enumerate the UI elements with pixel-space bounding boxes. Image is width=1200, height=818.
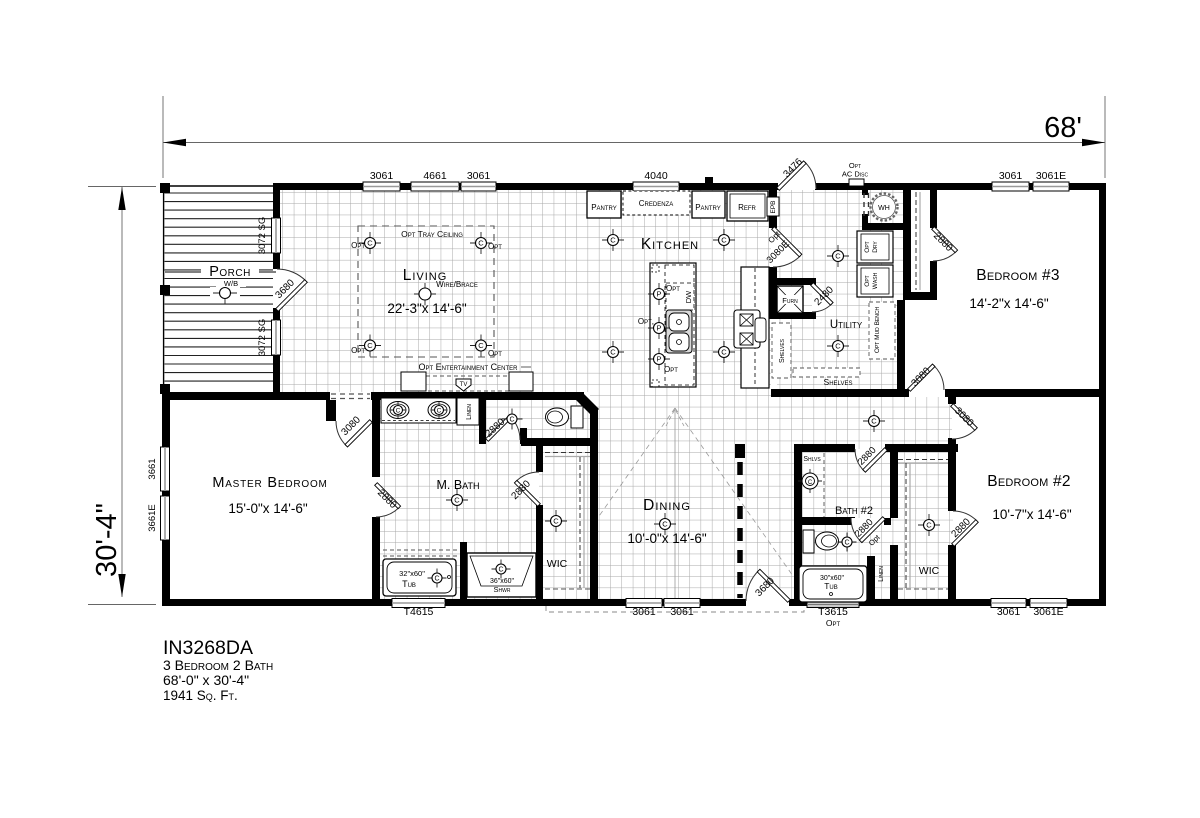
svg-text:Wash: Wash	[872, 272, 879, 289]
svg-text:C: C	[367, 341, 373, 350]
svg-text:Opt: Opt	[488, 242, 502, 251]
svg-text:C: C	[871, 417, 877, 426]
svg-text:Wire/Brace: Wire/Brace	[436, 280, 478, 289]
svg-text:M. Bath: M. Bath	[436, 478, 479, 492]
svg-text:T3615: T3615	[818, 606, 848, 618]
svg-text:Dining: Dining	[643, 497, 691, 514]
svg-text:Bedroom #2: Bedroom #2	[987, 473, 1070, 490]
svg-text:Shelves: Shelves	[824, 377, 853, 387]
svg-text:P: P	[656, 355, 661, 364]
svg-text:EPB: EPB	[770, 200, 777, 213]
svg-text:Opt: Opt	[864, 241, 871, 252]
svg-text:22'-3"x 14'-6": 22'-3"x 14'-6"	[387, 301, 466, 316]
svg-text:68'-0" x 30'-4": 68'-0" x 30'-4"	[163, 672, 249, 688]
svg-text:10'-7"x 14'-6": 10'-7"x 14'-6"	[992, 507, 1071, 522]
svg-text:36"x60": 36"x60"	[490, 578, 515, 585]
svg-text:3061: 3061	[999, 170, 1023, 182]
svg-text:C: C	[610, 236, 616, 245]
svg-text:3072 SG: 3072 SG	[257, 217, 268, 255]
svg-text:C: C	[610, 348, 616, 357]
svg-text:P: P	[656, 324, 661, 333]
svg-text:C: C	[662, 520, 668, 529]
svg-text:Opt Mud Bench: Opt Mud Bench	[874, 307, 881, 354]
svg-text:W/B: W/B	[224, 279, 238, 288]
svg-text:3661: 3661	[147, 458, 158, 479]
svg-text:68': 68'	[1044, 112, 1082, 144]
svg-text:Linen: Linen	[466, 404, 473, 420]
svg-text:Linen: Linen	[878, 566, 885, 582]
svg-text:Opt: Opt	[488, 349, 502, 358]
svg-text:C: C	[835, 252, 841, 261]
svg-text:4040: 4040	[644, 170, 668, 182]
svg-text:TV: TV	[460, 382, 468, 388]
svg-text:Opt Entertainment Center: Opt Entertainment Center	[419, 362, 519, 372]
svg-text:C: C	[835, 342, 841, 351]
svg-text:Shlvs: Shlvs	[803, 456, 821, 463]
svg-text:Utility: Utility	[830, 319, 863, 331]
svg-text:Tub: Tub	[402, 579, 416, 589]
svg-text:Opt,: Opt,	[638, 317, 654, 326]
svg-text:Credenza: Credenza	[639, 199, 673, 208]
svg-text:Tub: Tub	[824, 581, 838, 591]
svg-text:3072 SG: 3072 SG	[257, 319, 268, 357]
svg-text:3061E: 3061E	[1036, 170, 1066, 182]
svg-text:C: C	[721, 236, 727, 245]
svg-text:WIC: WIC	[547, 558, 568, 570]
svg-text:Shwr: Shwr	[494, 585, 511, 594]
svg-text:3061E: 3061E	[1033, 606, 1063, 618]
svg-text:C: C	[478, 341, 484, 350]
svg-text:C: C	[926, 521, 932, 530]
svg-text:C: C	[478, 239, 484, 248]
svg-text:1941 Sq. Ft.: 1941 Sq. Ft.	[163, 688, 238, 703]
svg-text:3061: 3061	[467, 170, 491, 182]
svg-text:C: C	[844, 540, 849, 547]
svg-text:Refr: Refr	[738, 203, 756, 212]
svg-text:Opt: Opt	[666, 284, 680, 293]
svg-text:Opt: Opt	[351, 346, 365, 355]
svg-text:Pantry: Pantry	[695, 203, 721, 212]
svg-text:Opt: Opt	[826, 618, 841, 628]
svg-text:Opt Tray Ceiling: Opt Tray Ceiling	[401, 229, 463, 239]
svg-text:3061: 3061	[997, 606, 1021, 618]
svg-text:14'-2"x 14'-6": 14'-2"x 14'-6"	[969, 296, 1048, 311]
svg-text:Bedroom #3: Bedroom #3	[976, 267, 1059, 284]
svg-text:C: C	[454, 496, 460, 505]
svg-text:C: C	[808, 480, 813, 486]
svg-text:32"x60": 32"x60"	[399, 569, 425, 578]
svg-text:IN3268DA: IN3268DA	[163, 637, 253, 659]
svg-text:3061: 3061	[670, 606, 694, 618]
svg-text:C: C	[434, 576, 439, 583]
svg-text:AC Disc: AC Disc	[842, 170, 869, 179]
svg-text:Opt: Opt	[864, 275, 871, 286]
svg-text:15'-0"x 14'-6": 15'-0"x 14'-6"	[228, 501, 307, 516]
svg-text:C: C	[509, 417, 514, 424]
svg-text:Porch: Porch	[209, 264, 251, 280]
svg-text:4661: 4661	[423, 170, 447, 182]
svg-text:Shelves: Shelves	[779, 338, 786, 363]
svg-text:Bath #2: Bath #2	[835, 505, 873, 517]
svg-text:Dry: Dry	[872, 241, 879, 253]
svg-text:3061: 3061	[632, 606, 656, 618]
svg-text:Master Bedroom: Master Bedroom	[212, 475, 327, 491]
svg-text:30'-4": 30'-4"	[91, 503, 123, 577]
svg-text:3 Bedroom 2 Bath: 3 Bedroom 2 Bath	[163, 657, 273, 673]
svg-text:10'-0"x 14'-6": 10'-0"x 14'-6"	[627, 531, 706, 546]
svg-text:WH: WH	[878, 205, 890, 212]
svg-text:C: C	[498, 567, 503, 574]
svg-text:C: C	[553, 517, 559, 526]
svg-text:C: C	[367, 239, 373, 248]
svg-text:Furn: Furn	[782, 296, 798, 305]
svg-text:T4615: T4615	[404, 606, 434, 618]
svg-text:Opt: Opt	[664, 365, 678, 374]
svg-text:P: P	[656, 290, 661, 299]
svg-text:Kitchen: Kitchen	[641, 236, 699, 253]
svg-text:Pantry: Pantry	[591, 203, 617, 212]
svg-text:3661E: 3661E	[147, 504, 158, 531]
svg-text:C: C	[721, 348, 727, 357]
svg-text:C: C	[437, 407, 442, 414]
svg-text:DW: DW	[684, 290, 693, 303]
svg-text:WIC: WIC	[919, 565, 940, 577]
svg-text:C: C	[396, 407, 401, 414]
svg-text:Opt: Opt	[351, 241, 365, 250]
svg-text:3061: 3061	[370, 170, 394, 182]
